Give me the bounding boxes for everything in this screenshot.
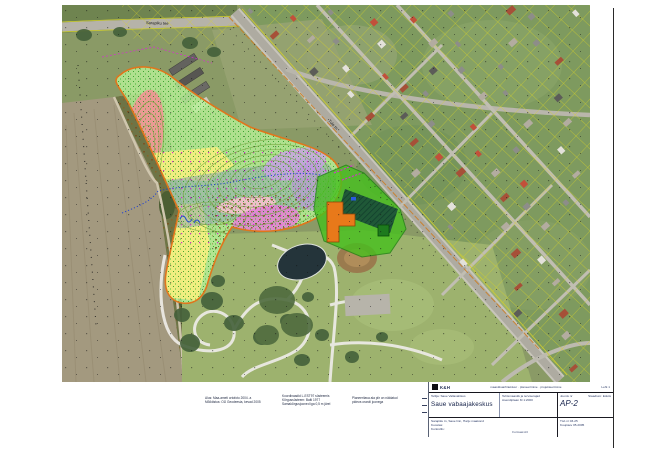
title-block-header-row: K&H maastikuarhitektuur · planeerimine ·… bbox=[429, 382, 613, 393]
sheet-number-label: Joonis nr bbox=[560, 394, 573, 398]
road-label-top: Sarapiku tee bbox=[146, 20, 169, 26]
sheet-border-line bbox=[613, 8, 614, 448]
fold-marks bbox=[422, 398, 427, 419]
project-title: Saue vabaajakeskus bbox=[431, 401, 497, 408]
aerial-plan-map: Sarapiku tee Tule tn bbox=[62, 5, 590, 382]
map-note-block-1: Alus: Maa-ameti ortofoto 2004. a Mõõdist… bbox=[205, 397, 263, 405]
title-block-main-row: Tellija: Saue Vallavalitsus Saue vabaaja… bbox=[429, 393, 613, 418]
linework bbox=[62, 5, 590, 382]
drawing-subtitle-2: Asendiplaan M 1:2000 bbox=[502, 398, 555, 402]
company-tagline: maastikuarhitektuur · planeerimine · pro… bbox=[450, 385, 601, 389]
work-date: Kuupäev 05.2005 bbox=[560, 423, 611, 427]
map-canvas: Sarapiku tee Tule tn bbox=[62, 5, 590, 382]
map-note-block-2: Koordinaadid L-EST97 süsteemis Kõrgussüs… bbox=[282, 395, 334, 407]
client-caption: Tellija: Saue Vallavalitsus bbox=[431, 394, 497, 398]
title-block-footer-row: Sarapiku tn, Saue linn, Harju maakond Ko… bbox=[429, 418, 613, 437]
stage-label: Staadium: Eskiis bbox=[588, 394, 611, 398]
format-note: Formaat A3 bbox=[488, 430, 552, 434]
sheet-number: AP-2 bbox=[560, 399, 611, 408]
map-note-block-3: Planeeritava ala piir on näidatud pideva… bbox=[352, 397, 414, 405]
title-block: K&H maastikuarhitektuur · planeerimine ·… bbox=[428, 382, 613, 437]
company-logo-text: K&H bbox=[440, 385, 450, 390]
company-logo-icon bbox=[432, 384, 438, 390]
sheet-count: Leht 1 bbox=[601, 385, 610, 389]
